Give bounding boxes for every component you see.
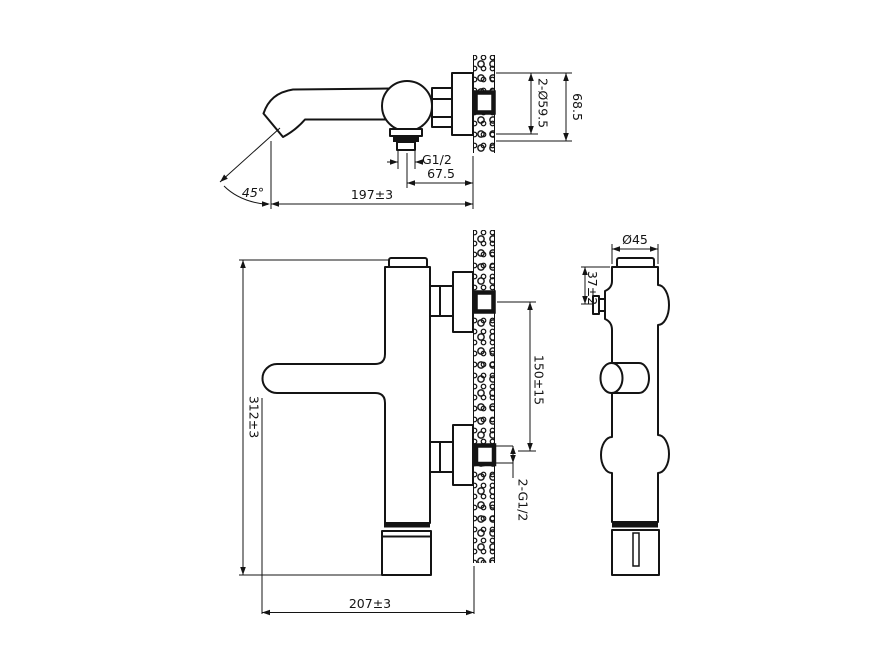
lower-escutcheon (453, 425, 473, 485)
spout-seal-band-side (612, 522, 658, 528)
upper-escutcheon (453, 272, 473, 332)
dim-total-height: 312±3 (239, 260, 388, 575)
front-view-drawing: 312±3 150±15 2-G1/2 (239, 258, 547, 615)
dim-label-body-diameter: Ø45 (622, 232, 648, 247)
dim-label-inlet-threads: 2-G1/2 (516, 479, 531, 522)
upper-inlet-neck (430, 286, 453, 316)
dim-escutcheon-diameter: 2-Ø59.5 (496, 73, 572, 134)
dim-label-spout-angle: 45° (242, 185, 264, 200)
dim-label-total-width: 207±3 (349, 596, 391, 611)
dim-inlet-threads: 2-G1/2 (496, 446, 531, 521)
spout-box-front (382, 531, 431, 575)
in-wall-fitting-square (476, 93, 494, 113)
mixer-body-with-handle (263, 267, 431, 523)
spout-outline (264, 89, 390, 138)
upper-inlet-fitting-square (476, 293, 494, 312)
top-view-drawing: 2-Ø59.5 68.5 G1/2 (220, 73, 585, 209)
mixer-body-side-profile (601, 267, 669, 522)
dim-label-inlet-spacing: 150±15 (532, 355, 547, 405)
lower-inlet-neck (430, 442, 453, 472)
outlet-collar (390, 129, 422, 136)
dim-label-spout-length: 197±3 (351, 187, 393, 202)
dim-label-escutcheon-diameter: 2-Ø59.5 (536, 78, 551, 128)
dim-total-width: 207±3 (262, 398, 474, 615)
technical-drawing-canvas: 2-Ø59.5 68.5 G1/2 (0, 0, 878, 658)
dim-label-outlet-thread: G1/2 (422, 152, 452, 167)
wall-connector (432, 88, 452, 127)
dim-label-total-height: 312±3 (247, 396, 262, 438)
drawing-svg: 2-Ø59.5 68.5 G1/2 (0, 0, 878, 658)
escutcheon-plate (452, 73, 473, 135)
spout-seal-band-front (384, 522, 430, 528)
outlet-nipple (397, 142, 415, 150)
side-view-drawing: Ø45 37±2 (581, 232, 669, 575)
lower-inlet-fitting-square (476, 446, 494, 465)
spout-box-side (612, 530, 659, 575)
handle-end-ellipse (601, 363, 623, 393)
dim-label-escutcheon-height: 68.5 (570, 93, 585, 121)
dim-inlet-spacing: 150±15 (497, 302, 547, 451)
dim-label-outlet-offset: 67.5 (427, 166, 455, 181)
valve-body-circle (382, 81, 432, 131)
dim-label-inlet-offset: 37±2 (585, 271, 600, 305)
